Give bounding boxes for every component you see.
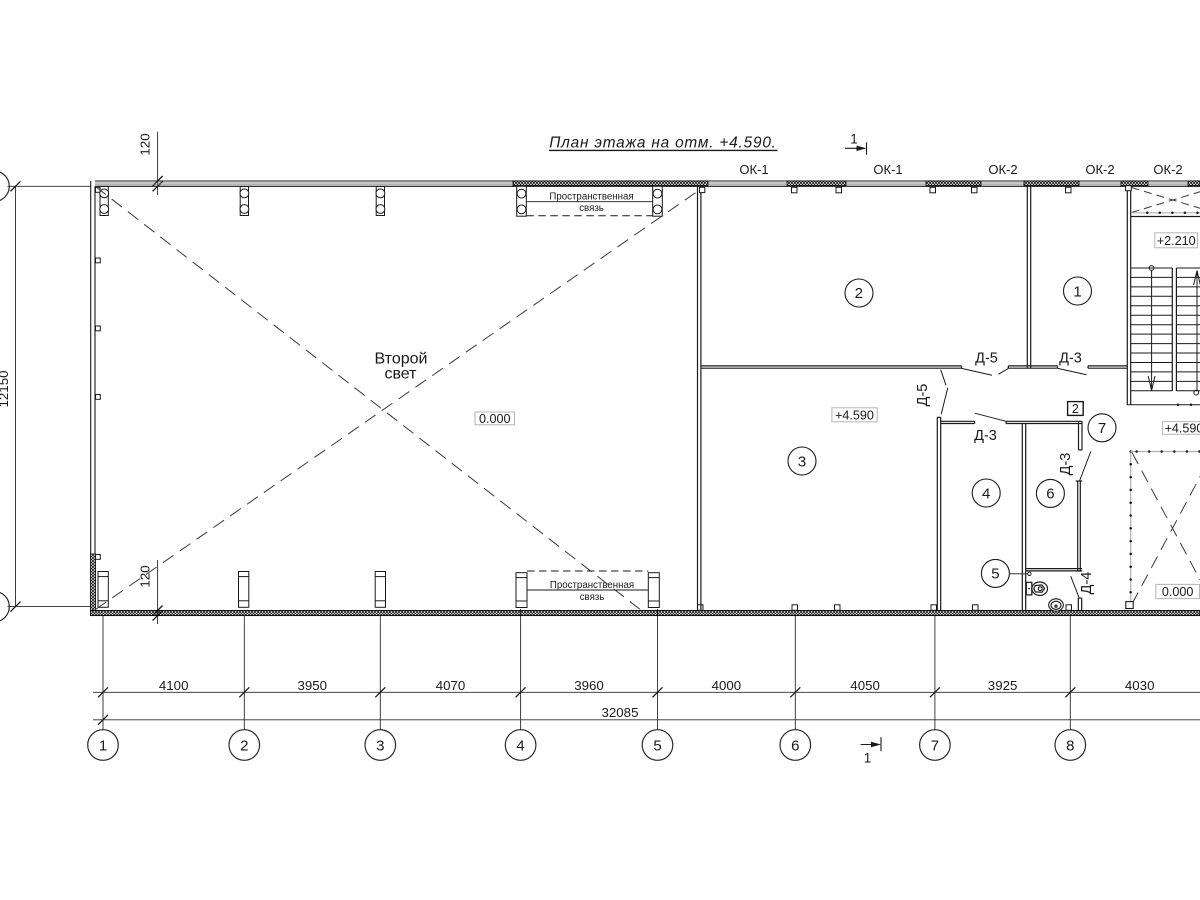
svg-text:7: 7	[1098, 420, 1106, 437]
svg-text:6: 6	[1046, 486, 1054, 503]
svg-text:3950: 3950	[298, 678, 328, 693]
svg-text:2: 2	[855, 285, 863, 302]
svg-text:120: 120	[138, 133, 153, 155]
svg-text:4: 4	[516, 737, 524, 754]
svg-text:4050: 4050	[850, 678, 880, 693]
svg-text:Д-5: Д-5	[975, 350, 998, 366]
svg-text:+4.590: +4.590	[1165, 421, 1200, 435]
svg-text:4000: 4000	[712, 678, 742, 693]
svg-text:Д-5: Д-5	[915, 384, 931, 407]
svg-text:6: 6	[791, 737, 799, 754]
svg-text:связь: связь	[579, 203, 604, 214]
svg-text:Пространственная: Пространственная	[549, 192, 633, 203]
svg-text:Д-3: Д-3	[974, 428, 997, 444]
svg-text:ОК-2: ОК-2	[1153, 162, 1182, 177]
svg-text:4100: 4100	[159, 678, 189, 693]
svg-text:Д-3: Д-3	[1058, 453, 1074, 476]
svg-text:Д-4: Д-4	[1079, 572, 1095, 595]
svg-text:5: 5	[991, 566, 999, 583]
svg-text:1: 1	[850, 132, 858, 147]
svg-text:ОК-1: ОК-1	[739, 162, 768, 177]
svg-text:связь: связь	[580, 592, 605, 603]
svg-text:Пространственная: Пространственная	[550, 580, 634, 591]
svg-text:3: 3	[376, 737, 384, 754]
svg-text:План этажа на отм. +4.590.: План этажа на отм. +4.590.	[549, 134, 777, 151]
svg-text:свет: свет	[384, 366, 417, 383]
svg-text:Д-3: Д-3	[1059, 350, 1082, 366]
svg-text:ОК-2: ОК-2	[1085, 162, 1114, 177]
svg-text:4030: 4030	[1125, 678, 1155, 693]
svg-text:2: 2	[1072, 402, 1079, 416]
svg-text:1: 1	[864, 751, 872, 766]
svg-text:+4.590: +4.590	[835, 409, 874, 423]
svg-text:1: 1	[99, 737, 107, 754]
svg-text:12150: 12150	[0, 371, 11, 408]
svg-text:4070: 4070	[436, 678, 466, 693]
svg-text:ОК-1: ОК-1	[873, 162, 902, 177]
svg-text:3: 3	[798, 453, 806, 470]
svg-text:ОК-2: ОК-2	[988, 162, 1017, 177]
svg-text:3925: 3925	[988, 678, 1018, 693]
svg-text:4: 4	[982, 485, 990, 502]
svg-text:8: 8	[1066, 737, 1074, 754]
svg-text:7: 7	[931, 737, 939, 754]
svg-text:0.000: 0.000	[479, 412, 511, 426]
svg-text:0.000: 0.000	[1162, 585, 1194, 599]
svg-text:120: 120	[138, 565, 153, 587]
svg-text:2: 2	[240, 737, 248, 754]
svg-text:1: 1	[1073, 283, 1081, 300]
svg-text:5: 5	[653, 737, 661, 754]
svg-text:3960: 3960	[574, 678, 604, 693]
svg-text:32085: 32085	[602, 705, 639, 720]
svg-text:+2.210: +2.210	[1157, 234, 1196, 248]
